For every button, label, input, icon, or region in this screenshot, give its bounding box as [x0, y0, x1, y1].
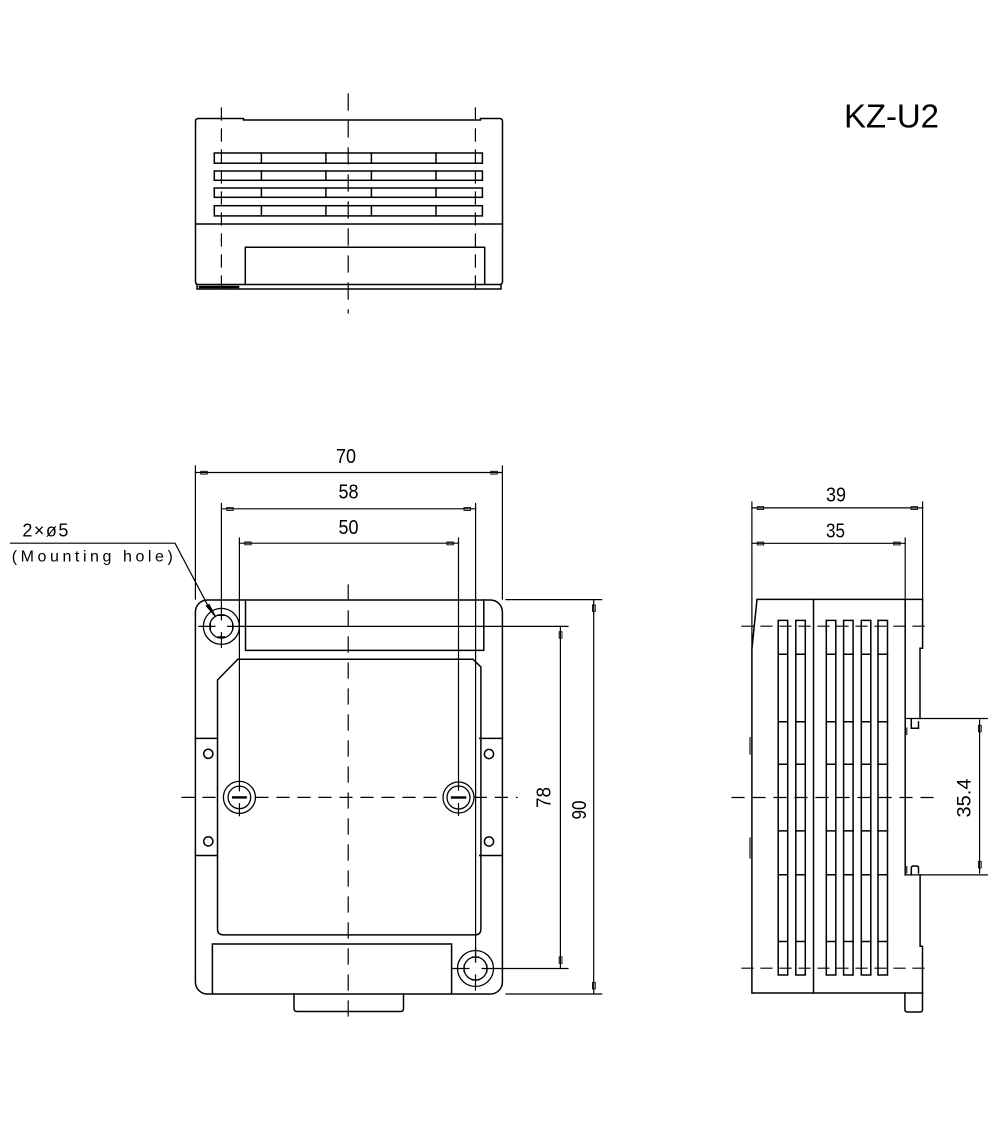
svg-text:35.4: 35.4: [955, 778, 976, 817]
svg-text:90: 90: [569, 801, 591, 820]
svg-text:KZ-U2: KZ-U2: [844, 98, 939, 135]
svg-text:35: 35: [826, 521, 845, 543]
svg-text:39: 39: [826, 485, 846, 507]
svg-text:78: 78: [534, 787, 556, 808]
svg-text:(Mounting hole): (Mounting hole): [12, 549, 173, 566]
svg-text:58: 58: [339, 482, 359, 504]
svg-text:50: 50: [339, 517, 359, 539]
svg-text:2×ø5: 2×ø5: [22, 521, 68, 541]
svg-text:70: 70: [336, 446, 356, 468]
